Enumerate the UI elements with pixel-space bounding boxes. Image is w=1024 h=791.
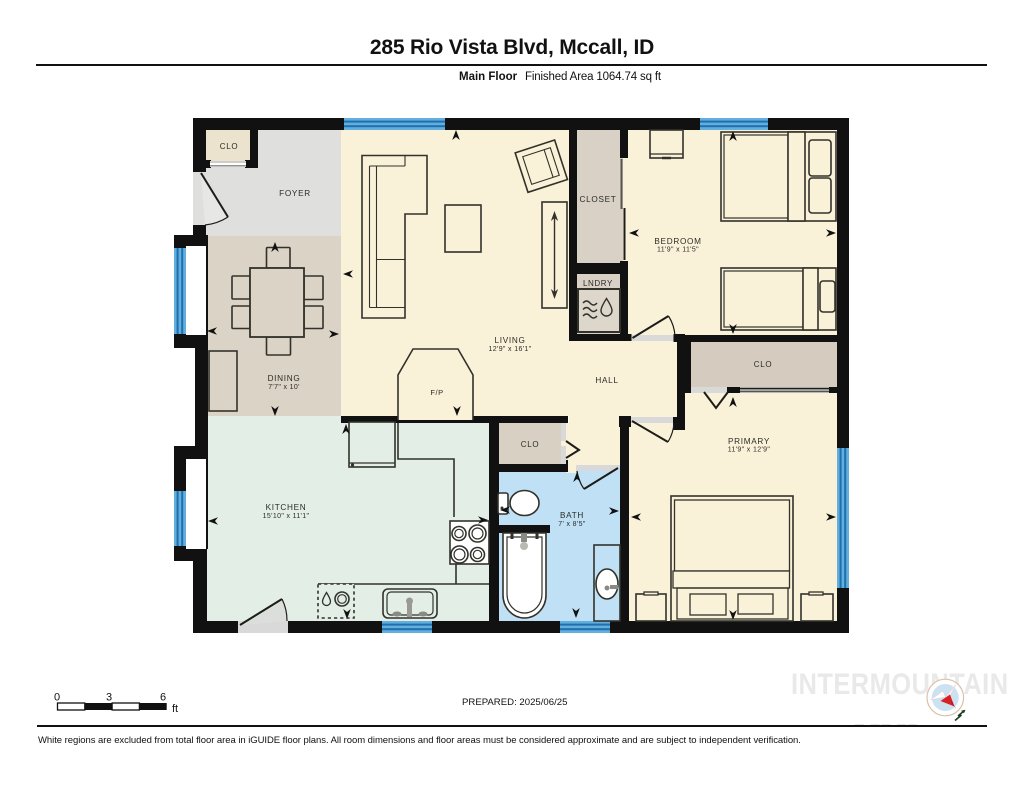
svg-text:F/P: F/P xyxy=(430,388,443,397)
svg-text:LNDRY: LNDRY xyxy=(583,279,613,288)
svg-text:0: 0 xyxy=(54,692,60,704)
svg-text:11'9" x 12'9": 11'9" x 12'9" xyxy=(728,447,771,454)
svg-text:LIVING: LIVING xyxy=(494,336,525,345)
svg-text:DINING: DINING xyxy=(268,374,301,383)
svg-text:6: 6 xyxy=(160,692,166,704)
svg-text:ft: ft xyxy=(172,703,178,715)
svg-text:7'7" x 10': 7'7" x 10' xyxy=(268,384,300,391)
svg-text:BATH: BATH xyxy=(560,511,584,520)
svg-text:KITCHEN: KITCHEN xyxy=(266,503,307,512)
svg-text:12'9" x 16'1": 12'9" x 16'1" xyxy=(489,346,532,353)
svg-text:11'9" x 11'5": 11'9" x 11'5" xyxy=(657,247,699,254)
svg-text:7' x 8'5": 7' x 8'5" xyxy=(558,521,586,528)
svg-text:BEDROOM: BEDROOM xyxy=(654,237,701,246)
svg-text:CLOSET: CLOSET xyxy=(580,195,617,204)
svg-text:3: 3 xyxy=(106,692,112,704)
svg-text:15'10" x 11'1": 15'10" x 11'1" xyxy=(263,513,310,520)
svg-text:FOYER: FOYER xyxy=(279,189,311,198)
svg-text:CLO: CLO xyxy=(521,440,540,449)
svg-text:CLO: CLO xyxy=(754,360,773,369)
svg-text:CLO: CLO xyxy=(220,142,239,151)
svg-text:HALL: HALL xyxy=(595,376,618,385)
svg-text:PRIMARY: PRIMARY xyxy=(728,437,770,446)
